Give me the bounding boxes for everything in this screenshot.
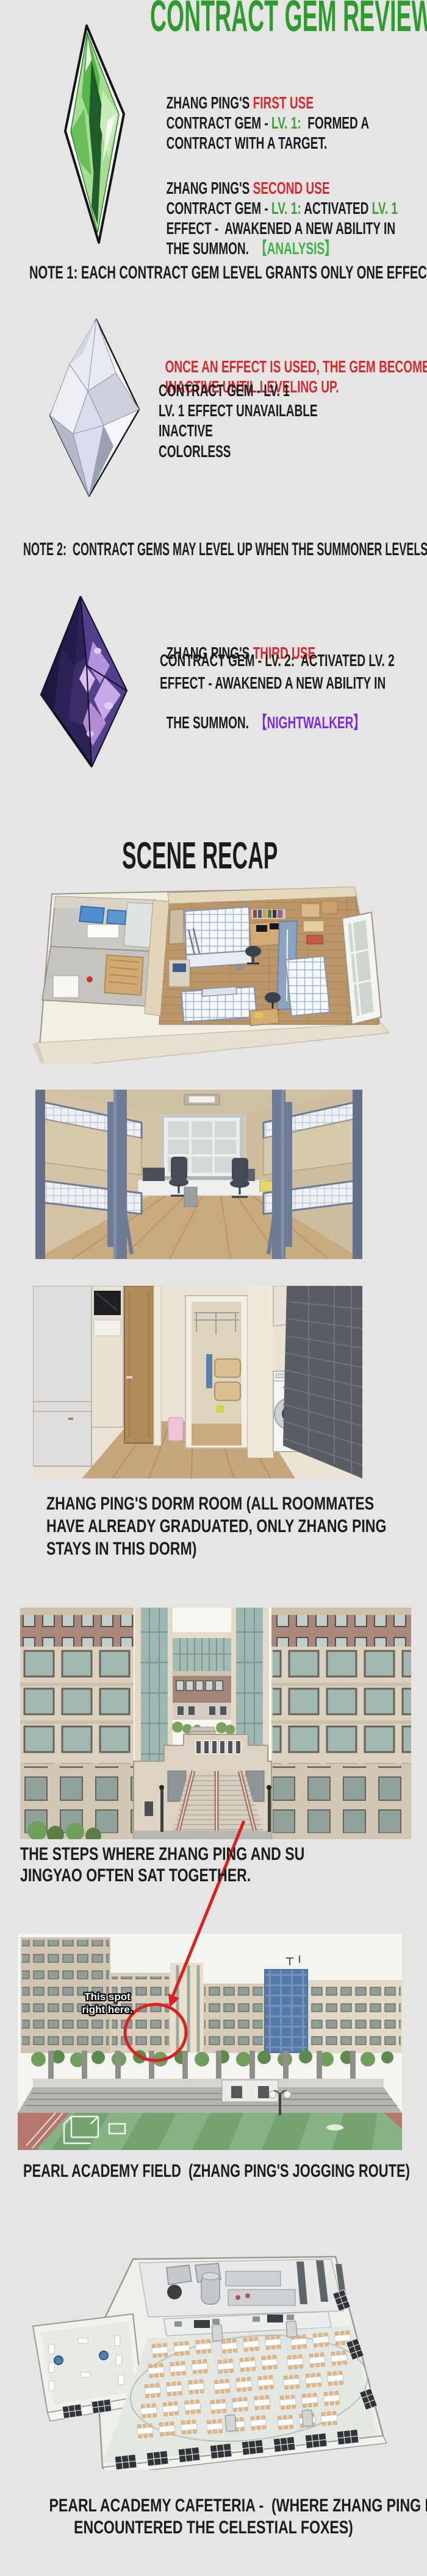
scene-recap-heading: SCENE RECAP xyxy=(122,837,278,875)
dorm-caption-line2: HAVE ALREADY GRADUATED, ONLY ZHANG PING xyxy=(46,1516,386,1536)
spot-annotation-text: This spot right here. xyxy=(73,1990,142,2016)
academy-steps-image xyxy=(20,1608,411,1839)
field-caption: PEARL ACADEMY FIELD (ZHANG PING'S JOGGIN… xyxy=(23,2161,410,2181)
analysis-tag: 【ANALYSIS】 xyxy=(256,239,337,258)
dorm-room-cutaway-image xyxy=(15,887,395,1063)
dorm-caption-line1: ZHANG PING'S DORM ROOM (ALL ROOMMATES xyxy=(46,1494,374,1514)
dorm-caption-line3: STAYS IN THIS DORM) xyxy=(46,1539,196,1559)
steps-caption-line1: THE STEPS WHERE ZHANG PING AND SU xyxy=(20,1844,304,1864)
cafeteria-caption-line1: PEARL ACADEMY CAFETERIA - (WHERE ZHANG P… xyxy=(49,2496,427,2516)
steps-caption-line2: JINGYAO OFTEN SAT TOGETHER. xyxy=(20,1865,251,1886)
colorless-contract-gem-illustration xyxy=(48,317,142,499)
cafeteria-caption-line2: ENCOUNTERED THE CELESTIAL FOXES) xyxy=(74,2517,353,2538)
dorm-hallway-image xyxy=(33,1286,362,1478)
note-1: NOTE 1: EACH CONTRACT GEM LEVEL GRANTS O… xyxy=(29,264,427,282)
academy-cafeteria-image xyxy=(11,2253,387,2470)
academy-field-image xyxy=(18,1934,402,2150)
dorm-room-interior-image xyxy=(35,1090,362,1259)
nightwalker-tag: 【NIGHTWALKER】 xyxy=(256,713,365,732)
page-title: CONTRACT GEM REVIEW xyxy=(150,0,427,38)
note-2: NOTE 2: CONTRACT GEMS MAY LEVEL UP WHEN … xyxy=(23,541,427,559)
green-contract-gem-illustration xyxy=(60,23,127,246)
purple-contract-gem-illustration xyxy=(32,592,129,770)
